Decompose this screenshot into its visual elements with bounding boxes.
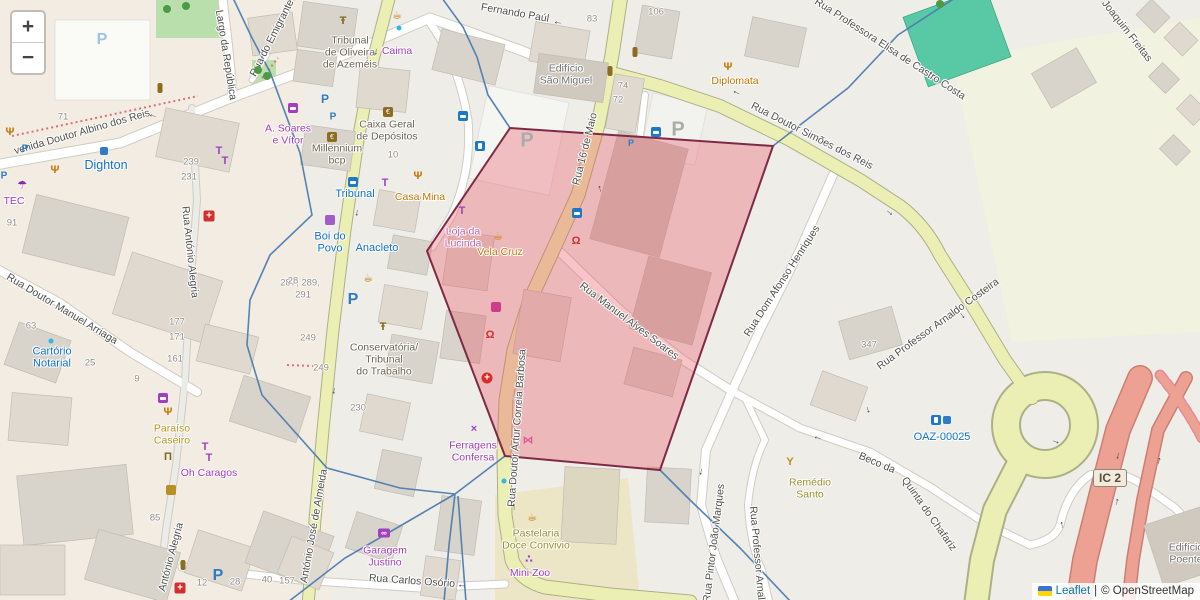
light-icon (181, 560, 186, 570)
dot-icon (397, 26, 402, 31)
museum-icon: Π (164, 451, 172, 463)
goblet-icon: Y (786, 456, 793, 468)
tooth-icon: Ω (572, 235, 581, 247)
misc-icon (100, 147, 108, 155)
ic2-route-shield: IC 2 (1093, 469, 1127, 487)
hosp-icon: + (482, 373, 493, 384)
car-icon: ∞ (378, 529, 390, 538)
plight-icon: P (97, 31, 108, 49)
leaflet-map[interactable]: venida Doutor Albino dos ReisLargo da Re… (0, 0, 1200, 600)
bus-icon (348, 177, 358, 187)
tv-icon (288, 103, 298, 113)
tree-icon (182, 2, 190, 10)
tree-icon (936, 0, 944, 8)
laundry-icon (325, 215, 335, 225)
dot-icon (502, 479, 507, 484)
tree-icon (163, 5, 171, 13)
shirt-icon: T (202, 441, 209, 453)
ukraine-flag-icon (1038, 586, 1052, 596)
pblue-icon: P (628, 138, 634, 148)
pgray-icon: P (671, 119, 684, 142)
shirt-icon: T (222, 155, 229, 167)
tree-icon (263, 72, 271, 80)
zoom-control[interactable]: + − (10, 10, 46, 75)
attribution-bar: Leaflet | © OpenStreetMap (1032, 583, 1200, 600)
scales-icon: Ŧ (340, 15, 347, 27)
pharm-icon: + (175, 583, 186, 594)
pgray-icon: P (520, 130, 533, 153)
fuel-icon (475, 141, 485, 151)
conv-icon (491, 302, 501, 312)
icon-layer: PPPPPPPPPP+++ΩΩ☕☕☕☕YΨΨΨΨΨTTTTTT☂ΠŦŦ€€⋈∴∞… (0, 0, 1200, 600)
cafe-icon: ☕ (392, 9, 402, 22)
bus-icon (651, 127, 661, 137)
shirt-icon: T (459, 205, 466, 217)
rest-icon: Ψ (6, 126, 15, 138)
pblue-icon: P (1, 171, 8, 182)
pblue-icon: P (213, 567, 224, 585)
zoom-out-button[interactable]: − (12, 43, 44, 73)
light-icon (608, 66, 613, 76)
shirt-icon: T (382, 177, 389, 189)
beer-icon (166, 485, 176, 495)
leaflet-link[interactable]: Leaflet (1056, 585, 1091, 597)
cafe-icon: ☕ (493, 230, 503, 243)
fuel-icon (931, 415, 941, 425)
rest-icon: Ψ (724, 61, 733, 73)
pblue-icon: P (330, 112, 337, 123)
atm-icon: € (327, 132, 337, 142)
atm-icon: € (383, 107, 393, 117)
light-icon (158, 83, 163, 93)
bus-icon (572, 208, 582, 218)
zoom-in-button[interactable]: + (12, 12, 44, 43)
rest-icon: Ψ (51, 164, 60, 176)
tools-icon: × (471, 423, 477, 435)
rest-icon: Ψ (414, 170, 423, 182)
tooth-icon: Ω (486, 329, 495, 341)
light-icon (633, 47, 638, 57)
fish-icon: ⋈ (523, 434, 534, 447)
tv-icon (158, 393, 168, 403)
bus-icon (458, 111, 468, 121)
rest-icon: Ψ (164, 406, 173, 418)
scales-icon: Ŧ (380, 321, 387, 333)
cafe-icon: ☕ (527, 511, 537, 524)
shirt-icon: T (216, 145, 223, 157)
cafe-icon: ☕ (363, 272, 373, 285)
pblue-icon: P (321, 92, 329, 106)
umbrella-icon: ☂ (17, 179, 27, 192)
dot-icon (49, 339, 54, 344)
attribution-separator: | (1094, 585, 1097, 597)
shirt-icon: T (206, 452, 213, 464)
osm-link[interactable]: © OpenStreetMap (1101, 585, 1194, 597)
paw-icon: ∴ (525, 553, 533, 566)
tree-icon (254, 66, 262, 74)
pblue-icon: P (22, 144, 29, 155)
misc-icon (943, 416, 951, 424)
pblue-icon: P (348, 291, 359, 309)
pharm-icon: + (204, 211, 215, 222)
